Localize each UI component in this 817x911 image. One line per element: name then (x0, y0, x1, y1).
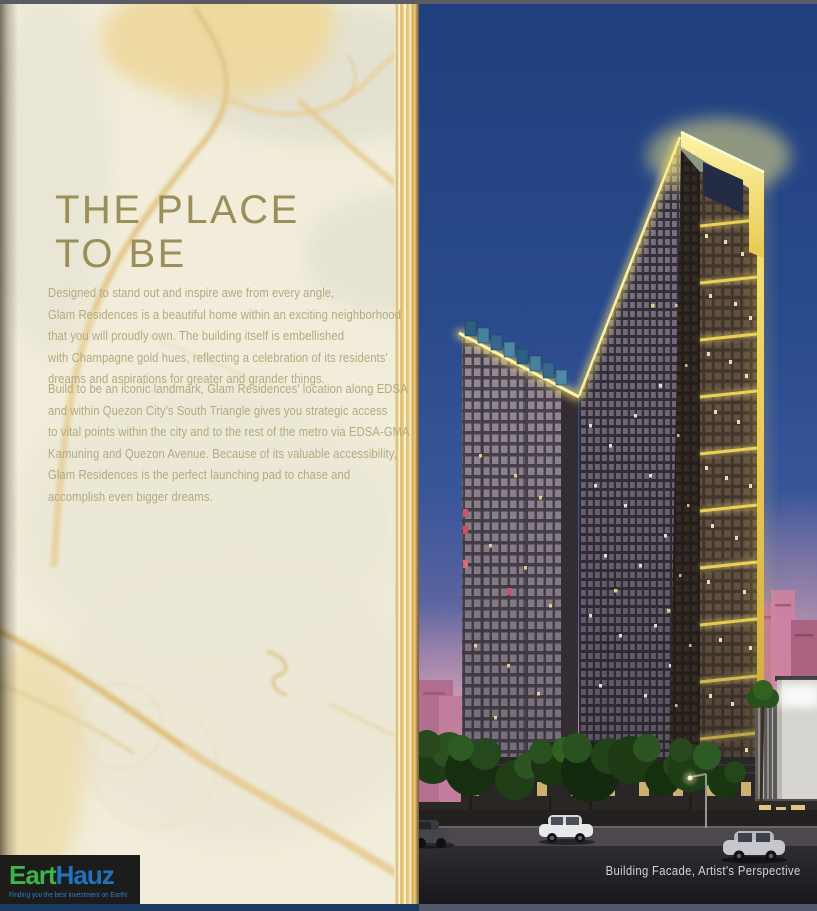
left-tower (457, 321, 580, 768)
bottom-strip-left (0, 904, 419, 911)
building-render (419, 4, 817, 904)
earthhauz-logo: EartHauz Finding you the best investment… (0, 855, 140, 904)
logo-wordmark: EartHauz (9, 861, 140, 889)
logo-tagline: Finding you the best investment on Earth… (9, 890, 124, 899)
page-fold-shadow (0, 4, 18, 904)
right-page: Building Facade, Artist's Perspective (419, 4, 817, 904)
intro-paragraph: Designed to stand out and inspire awe fr… (48, 283, 401, 391)
location-paragraph: Build to be an iconic landmark, Glam Res… (48, 379, 410, 509)
left-page: THE PLACE TO BE Designed to stand out an… (0, 4, 419, 904)
logo-earth-text: Eart (9, 860, 56, 890)
top-divider-bar (0, 0, 817, 4)
bottom-strip-right (419, 904, 817, 911)
render-caption: Building Facade, Artist's Perspective (606, 864, 801, 878)
page-title: THE PLACE TO BE (55, 188, 300, 276)
brochure-spread: THE PLACE TO BE Designed to stand out an… (0, 0, 817, 911)
logo-hauz-text: Hauz (56, 860, 114, 890)
